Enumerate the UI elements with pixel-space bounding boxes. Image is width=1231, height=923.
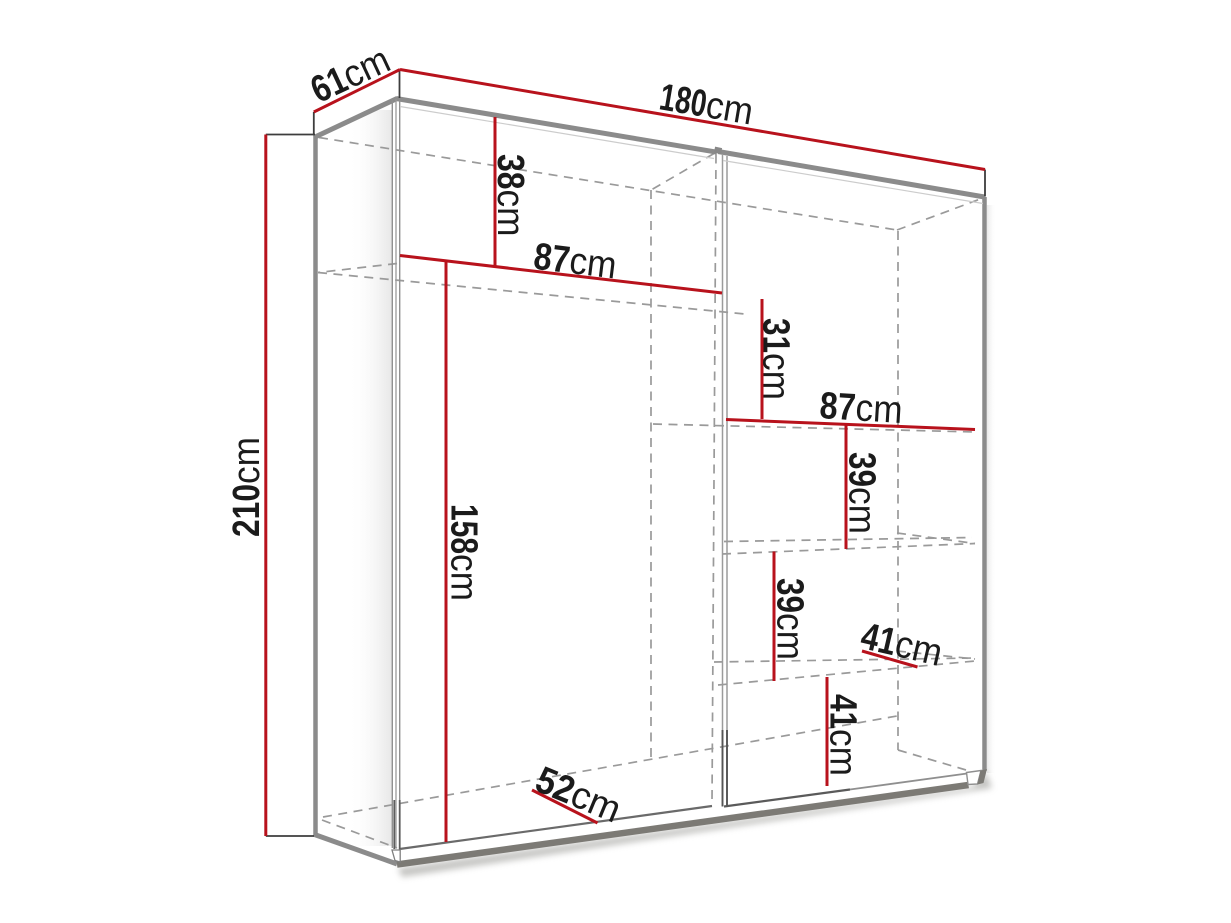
svg-text:61cm: 61cm <box>305 39 397 112</box>
svg-text:210cm: 210cm <box>226 437 268 537</box>
svg-text:87cm: 87cm <box>531 236 618 288</box>
svg-text:87cm: 87cm <box>818 385 903 432</box>
svg-text:31cm: 31cm <box>755 318 797 400</box>
svg-text:39cm: 39cm <box>841 452 883 534</box>
svg-text:38cm: 38cm <box>489 154 531 237</box>
svg-text:39cm: 39cm <box>769 578 811 660</box>
svg-text:180cm: 180cm <box>656 76 756 133</box>
svg-text:41cm: 41cm <box>822 694 864 776</box>
svg-text:158cm: 158cm <box>443 504 485 601</box>
svg-text:41cm: 41cm <box>857 615 946 674</box>
svg-text:52cm: 52cm <box>530 759 627 831</box>
